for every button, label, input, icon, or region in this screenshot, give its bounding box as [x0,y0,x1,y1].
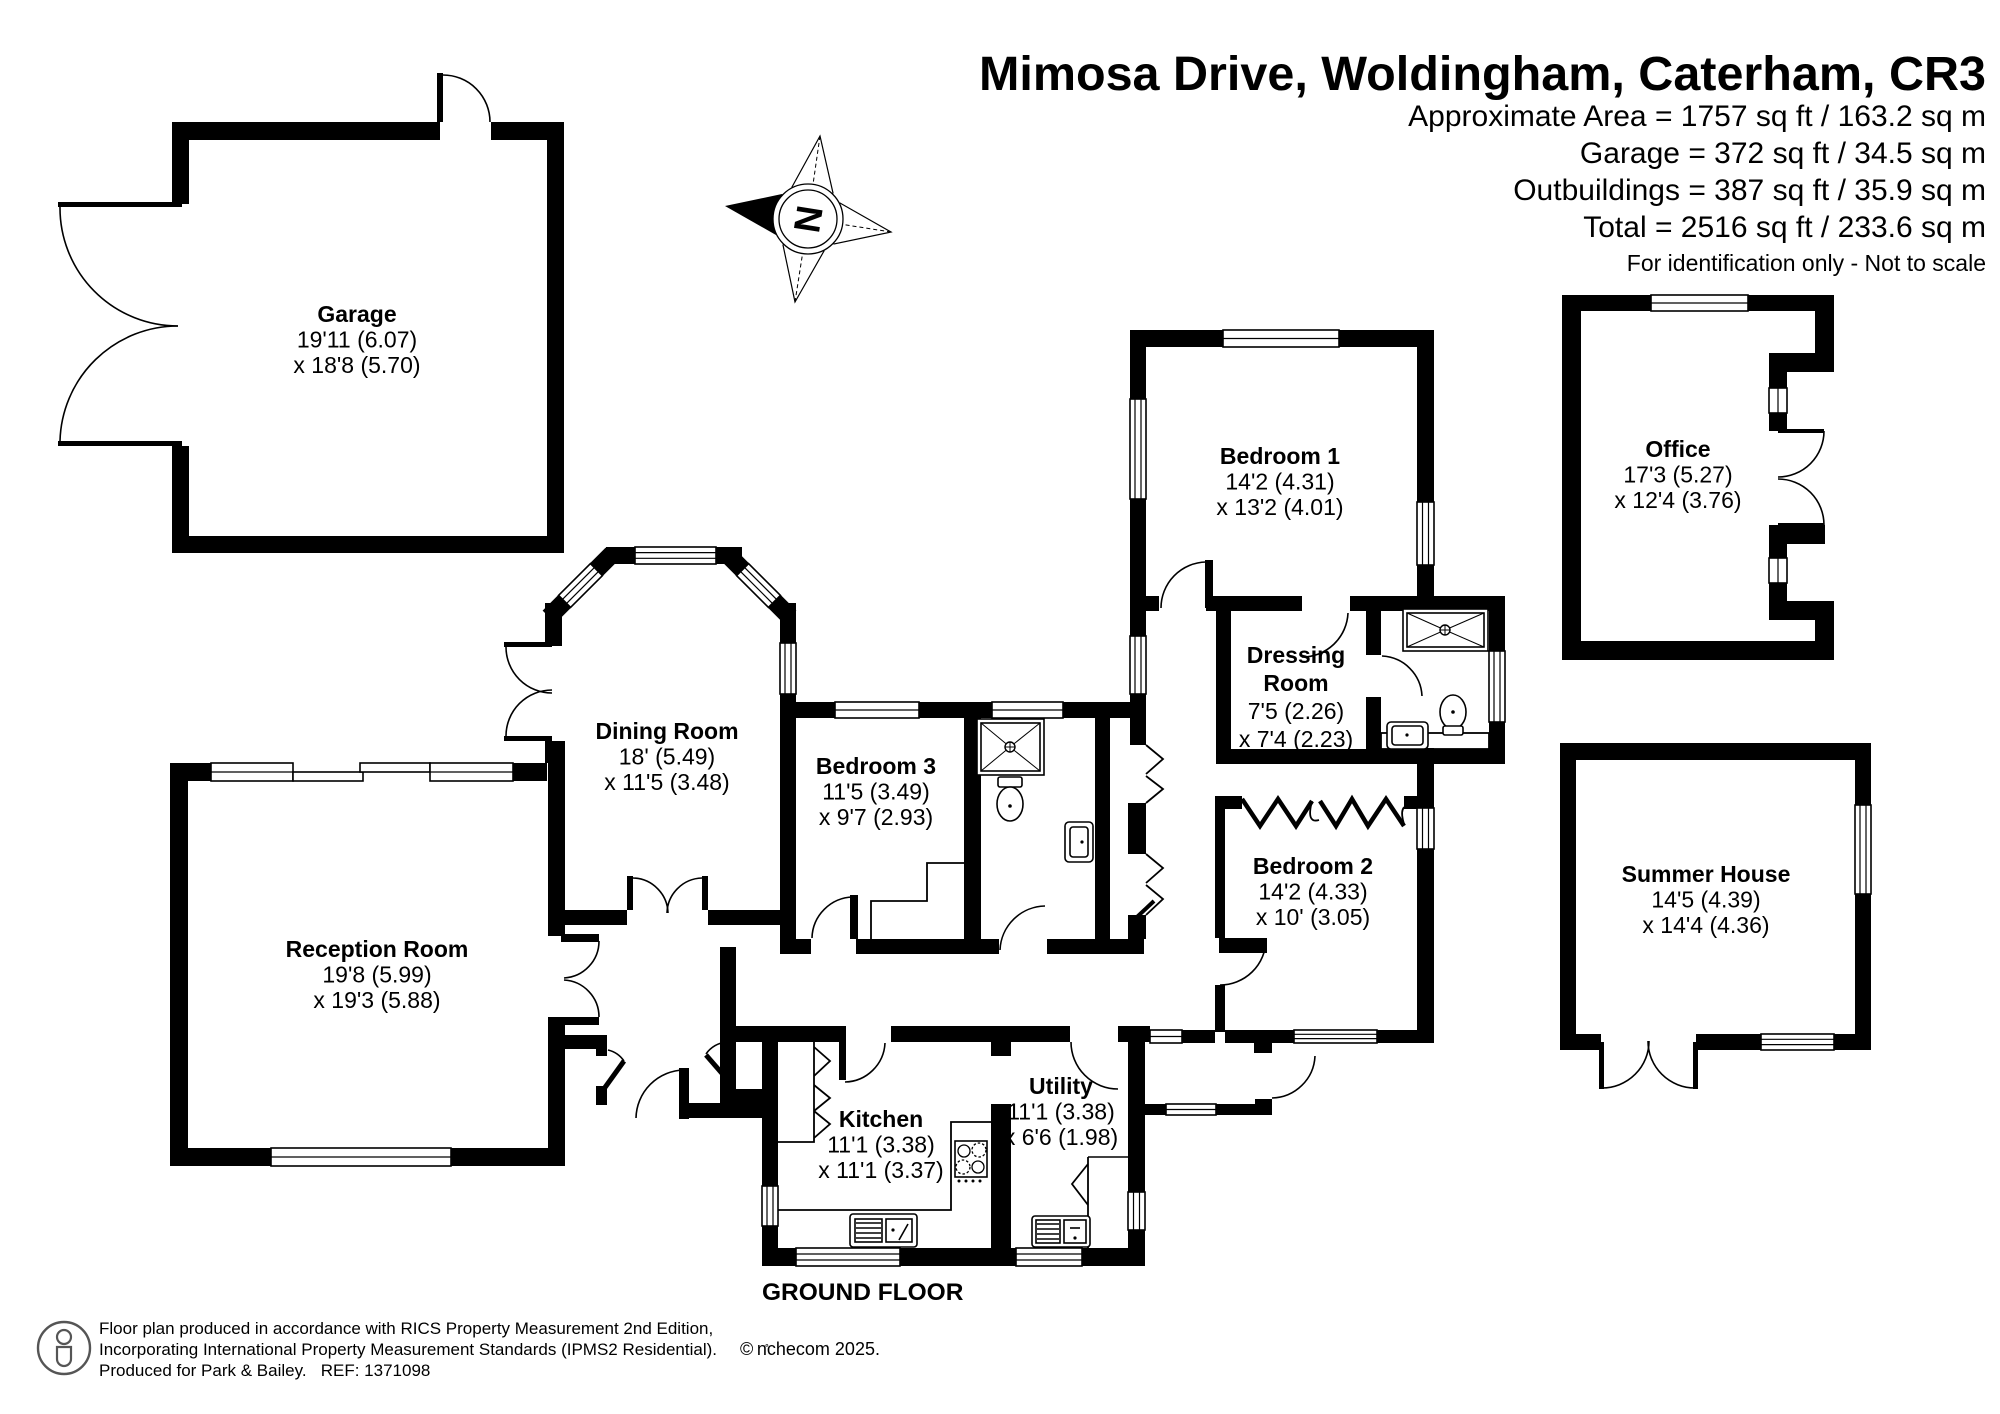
svg-text:x 9'7 (2.93): x 9'7 (2.93) [819,804,933,830]
svg-text:x 7'4 (2.23): x 7'4 (2.23) [1239,726,1353,752]
svg-text:x 18'8 (5.70): x 18'8 (5.70) [293,352,420,378]
svg-text:Approximate Area = 1757 sq ft: Approximate Area = 1757 sq ft / 163.2 sq… [1408,100,1986,133]
svg-text:Dining Room: Dining Room [595,718,738,744]
svg-text:14'5 (4.39): 14'5 (4.39) [1651,887,1760,913]
svg-text:Bedroom 3: Bedroom 3 [816,753,936,779]
svg-text:17'3 (5.27): 17'3 (5.27) [1623,462,1732,488]
svg-text:Total = 2516 sq ft / 233.6 sq: Total = 2516 sq ft / 233.6 sq m [1583,211,1986,244]
svg-text:x 14'4 (4.36): x 14'4 (4.36) [1642,912,1769,938]
svg-text:19'8 (5.99): 19'8 (5.99) [322,962,431,988]
svg-text:11'1 (3.38): 11'1 (3.38) [827,1132,935,1158]
svg-text:14'2 (4.31): 14'2 (4.31) [1225,469,1334,495]
svg-text:x 6'6 (1.98): x 6'6 (1.98) [1004,1124,1118,1150]
svg-text:Incorporating International Pr: Incorporating International Property Mea… [99,1340,717,1359]
svg-text:x 12'4 (3.76): x 12'4 (3.76) [1614,487,1741,513]
svg-text:Outbuildings = 387 sq ft / 35.: Outbuildings = 387 sq ft / 35.9 sq m [1513,174,1986,207]
svg-text:19'11 (6.07): 19'11 (6.07) [297,327,417,353]
svg-text:11'5 (3.49): 11'5 (3.49) [822,779,930,805]
svg-text:Garage = 372 sq ft / 34.5 sq m: Garage = 372 sq ft / 34.5 sq m [1580,137,1986,170]
svg-text:x 10' (3.05): x 10' (3.05) [1256,904,1370,930]
svg-text:7'5 (2.26): 7'5 (2.26) [1248,698,1344,724]
svg-text:Mimosa Drive, Woldingham, Cate: Mimosa Drive, Woldingham, Caterham, CR3 [979,47,1986,101]
svg-text:x 11'1 (3.37): x 11'1 (3.37) [818,1157,943,1183]
svg-text:Kitchen: Kitchen [839,1106,923,1132]
svg-text:Reception Room: Reception Room [286,936,469,962]
svg-text:18' (5.49): 18' (5.49) [619,744,715,770]
svg-text:Room: Room [1263,670,1328,696]
svg-text:Office: Office [1645,436,1710,462]
svg-text:Bedroom 1: Bedroom 1 [1220,443,1340,469]
svg-text:Utility: Utility [1029,1073,1093,1099]
svg-text:© n̊checom 2025.: © n̊checom 2025. [740,1339,880,1359]
svg-text:Bedroom 2: Bedroom 2 [1253,853,1373,879]
svg-text:x 11'5 (3.48): x 11'5 (3.48) [604,769,729,795]
svg-text:x 19'3 (5.88): x 19'3 (5.88) [313,987,440,1013]
svg-text:Summer House: Summer House [1622,861,1791,887]
svg-text:14'2 (4.33): 14'2 (4.33) [1258,879,1367,905]
svg-text:Garage: Garage [317,301,396,327]
svg-text:Produced for Park & Bailey.: Produced for Park & Bailey. REF: 1371098 [99,1361,430,1380]
svg-text:Floor plan produced in accorda: Floor plan produced in accordance with R… [99,1319,713,1338]
svg-text:11'1 (3.38): 11'1 (3.38) [1007,1099,1115,1125]
svg-text:GROUND FLOOR: GROUND FLOOR [762,1279,964,1306]
svg-text:Dressing: Dressing [1247,642,1345,668]
svg-text:x 13'2 (4.01): x 13'2 (4.01) [1216,494,1343,520]
svg-text:For identification only - Not: For identification only - Not to scale [1627,250,1986,276]
